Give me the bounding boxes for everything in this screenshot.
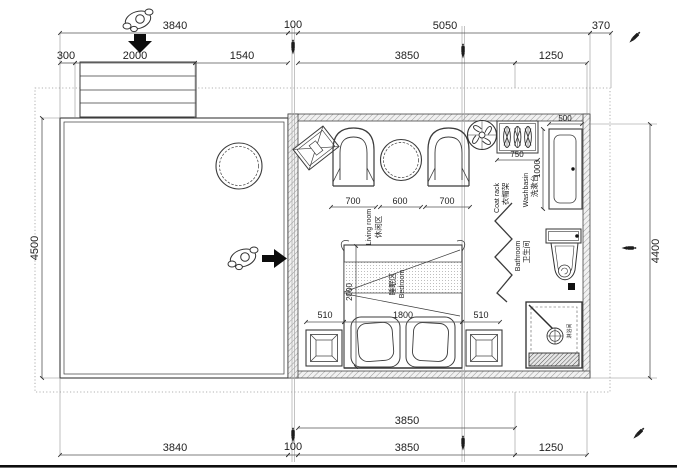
dim-coat-rack-750: 750 (510, 150, 524, 159)
floor-plan-canvas: 3840 100 5050 370 300 2000 1540 3850 125… (0, 0, 677, 473)
dim-top-5050: 5050 (433, 20, 457, 32)
label-coat-rack-zh: 衣帽架 (500, 182, 510, 205)
dim-right-4400: 4400 (650, 239, 662, 263)
armchair-right (428, 128, 469, 186)
dim-top-370: 370 (592, 20, 610, 32)
dim-bot1-3850: 3850 (395, 415, 419, 427)
page-bottom-rule (0, 465, 677, 468)
label-coat-rack-en: Coat rack (494, 183, 501, 213)
nightstand-left (306, 330, 342, 366)
dimensions-living: 700 600 700 (331, 196, 470, 207)
dim-bot2-1250: 1250 (539, 442, 563, 454)
dimension-left: 4500 (29, 118, 42, 378)
fan-icon (468, 121, 497, 150)
dim-top-3840: 3840 (163, 20, 187, 32)
round-table-left-room (216, 143, 262, 189)
label-shower-zh: 淋浴间 (566, 323, 573, 338)
dim-table-600: 600 (392, 196, 407, 206)
entry-stairs (80, 62, 196, 117)
nightstand-right (466, 330, 502, 366)
floor-plan-page: 3840 100 5050 370 300 2000 1540 3850 125… (0, 0, 677, 473)
dim-bed-510-left: 510 (317, 310, 332, 320)
label-washbasin-zh: 洗漱台 (529, 175, 539, 198)
dim-top2-1250: 1250 (539, 50, 563, 62)
dim-left-4500: 4500 (29, 236, 41, 260)
pen-marker-icon (632, 427, 645, 440)
dim-washbasin-500: 500 (558, 114, 572, 123)
coat-rack (497, 121, 538, 153)
zigzag-partition (495, 203, 512, 302)
pen-marker-icon (628, 31, 641, 44)
pillow-right (412, 322, 449, 362)
label-bedroom-zh: 睡眠区 (388, 272, 397, 295)
toilet (546, 229, 581, 290)
label-living-zh: 休闲区 (373, 215, 383, 238)
label-bathroom-zh: 卫生间 (521, 241, 531, 264)
dim-top2-2000: 2000 (123, 50, 147, 62)
dim-chair-right-700: 700 (439, 196, 454, 206)
dim-top2-300: 300 (57, 50, 75, 62)
label-living-en: Living room (366, 209, 373, 245)
dim-bot2-3840: 3840 (163, 442, 187, 454)
label-washbasin-en: Washbasin (523, 173, 530, 207)
label-bedroom-en: Bedroom (399, 270, 406, 299)
bed (341, 241, 464, 368)
dim-top2-1540: 1540 (230, 50, 254, 62)
pen-marker-icon (622, 246, 637, 249)
dim-top2-3850: 3850 (395, 50, 419, 62)
label-bathroom-en: Bathroom (515, 241, 522, 272)
side-table-diamond (293, 126, 339, 170)
dim-top-100: 100 (284, 19, 302, 31)
dim-bot2-100: 100 (284, 441, 302, 453)
grid-centerlines (292, 26, 465, 462)
pillow-left (357, 322, 395, 362)
person-icon-top (123, 8, 153, 32)
dim-chair-left-700: 700 (345, 196, 360, 206)
washbasin (549, 129, 582, 209)
dim-bed-510-right: 510 (473, 310, 488, 320)
dim-bot2-3850: 3850 (395, 442, 419, 454)
shower (526, 302, 582, 368)
armchair-left (333, 128, 374, 186)
dim-bed-1800: 1800 (393, 310, 413, 320)
dimensions-bottom: 3850 3840 100 3850 1250 (60, 415, 587, 455)
dim-bed-2000: 2000 (345, 283, 354, 301)
dimension-right: 4400 (650, 124, 662, 378)
round-table-living (381, 140, 422, 181)
